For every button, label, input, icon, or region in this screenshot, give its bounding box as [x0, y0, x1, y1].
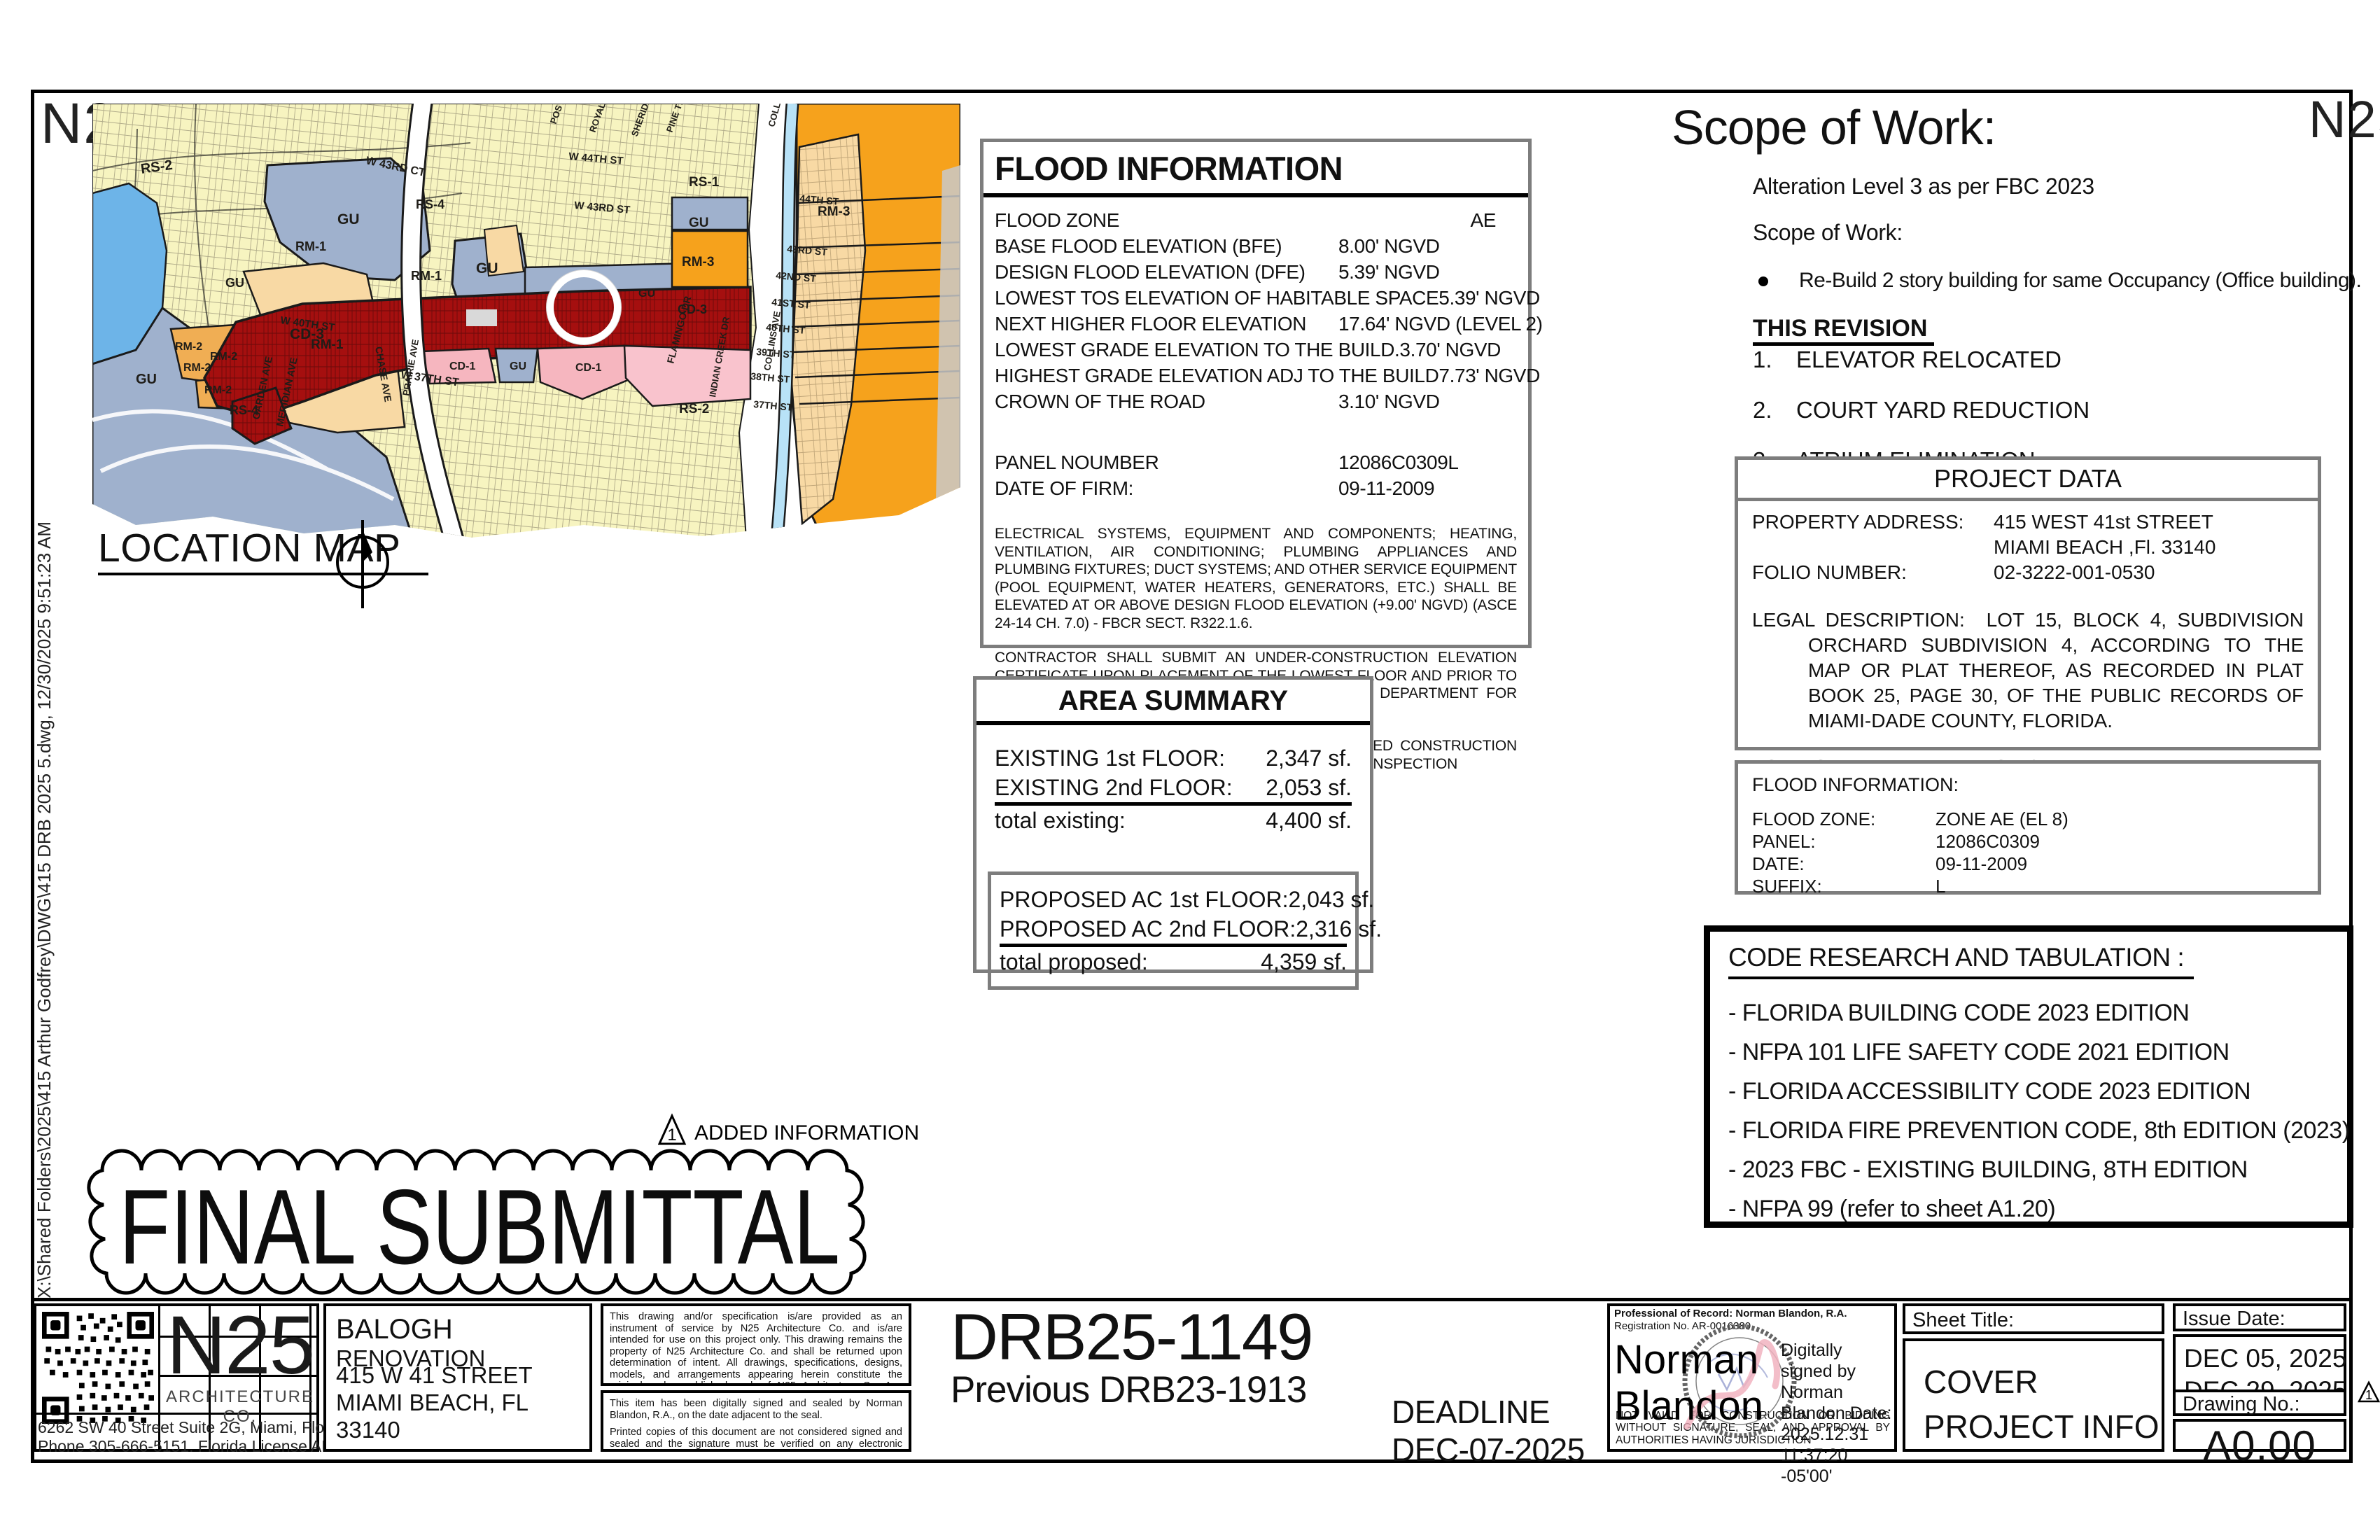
- row-label: PROPOSED AC 1st FLOOR:: [1000, 885, 1289, 914]
- table-row: PROPOSED AC 2nd FLOOR:2,316 sf.: [1000, 914, 1347, 947]
- row-label: DESIGN FLOOD ELEVATION (DFE): [995, 259, 1338, 285]
- deadline-date: DEC-07-2025: [1392, 1431, 1585, 1469]
- table-row: total existing:4,400 sf.: [995, 806, 1352, 835]
- row-label: LOWEST TOS ELEVATION OF HABITABLE SPACE: [995, 285, 1438, 311]
- svg-text:1: 1: [2365, 1388, 2372, 1402]
- flood-info-heading: FLOOD INFORMATION:: [1752, 773, 2304, 797]
- issue-date-1: DEC 05, 2025: [2184, 1344, 2346, 1373]
- revision-triangle-icon: 1: [2357, 1380, 2380, 1403]
- row-label: EXISTING 2nd FLOOR:: [995, 773, 1266, 802]
- map-zone-label: GU: [638, 288, 655, 300]
- map-zone-label: RM-1: [411, 269, 442, 283]
- property-address-row: PROPERTY ADDRESS: 415 WEST 41st STREETMI…: [1752, 510, 2304, 560]
- row-value: 3.70' NGVD: [1399, 337, 1517, 363]
- row-label: LOWEST GRADE ELEVATION TO THE BUILD.: [995, 337, 1399, 363]
- row-value: 2,043 sf.: [1289, 885, 1375, 914]
- drawing-no-cell: A0.00: [2173, 1419, 2346, 1452]
- drb-previous: Previous DRB23-1913: [951, 1371, 1312, 1410]
- project-data-box: PROJECT DATA PROPERTY ADDRESS: 415 WEST …: [1735, 456, 2321, 750]
- alteration-level: Alteration Level 3 as per FBC 2023: [1753, 174, 2094, 199]
- sheet-title: COVER PROJECT INFO: [1905, 1341, 2162, 1449]
- row-label: NEXT HIGHER FLOOR ELEVATION: [995, 311, 1338, 337]
- architect-logo: N25: [161, 1306, 319, 1385]
- map-zone-label: RM-2: [175, 341, 202, 353]
- map-zone-label: RM-1: [295, 239, 326, 253]
- folio-row: FOLIO NUMBER:02-3222-001-0530: [1752, 560, 2304, 585]
- table-row: FLOOD ZONEAE: [995, 207, 1517, 233]
- table-row: BASE FLOOD ELEVATION (BFE)8.00' NGVD: [995, 233, 1517, 259]
- map-zone-label: GU: [689, 216, 709, 230]
- row-label: HIGHEST GRADE ELEVATION ADJ TO THE BUILD: [995, 363, 1438, 388]
- project-flood-box: FLOOD INFORMATION: FLOOD ZONE:ZONE AE (E…: [1735, 760, 2321, 895]
- location-map: RS-2W 43RD CTGUGURM-1RM-1GURS-4CD-3RM-2R…: [92, 104, 960, 539]
- row-label: PANEL NOUMBER: [995, 449, 1338, 475]
- row-value: 7.73' NGVD: [1438, 363, 1540, 388]
- row-value: 2,347 sf.: [1266, 743, 1352, 773]
- row-value: 2,053 sf.: [1266, 773, 1352, 802]
- row-label: PROPOSED AC 2nd FLOOR:: [1000, 914, 1296, 944]
- row-value: 3.10' NGVD: [1338, 388, 1517, 414]
- row-value: 12086C0309L: [1338, 449, 1517, 475]
- table-row: CROWN OF THE ROAD3.10' NGVD: [995, 388, 1517, 414]
- corner-logo-right: N25: [2309, 90, 2380, 149]
- code-item: - NFPA 99 (refer to sheet A1.20): [1728, 1189, 2329, 1228]
- final-submittal-text: FINAL SUBMITTAL: [119, 1168, 840, 1287]
- row-value: AE: [1317, 207, 1517, 233]
- file-path-note: X:\Shared Folders\2025\415 Arthur Godfre…: [34, 584, 55, 1298]
- code-item: - 2023 FBC - EXISTING BUILDING, 8TH EDIT…: [1728, 1150, 2329, 1189]
- flood-information-title: FLOOD INFORMATION: [983, 142, 1528, 197]
- drawing-no-header: Drawing No.:: [2173, 1389, 2346, 1416]
- map-zone-label: RM-2: [183, 362, 211, 374]
- revision-item: 2.COURT YARD REDUCTION: [1753, 385, 2141, 435]
- disclaimer-box-1: This drawing and/or specification is/are…: [601, 1303, 911, 1386]
- drb-number-block: DRB25-1149 Previous DRB23-1913: [951, 1303, 1312, 1410]
- drawing-number: A0.00: [2176, 1422, 2344, 1470]
- row-value: 5.39' NGVD: [1338, 259, 1517, 285]
- revision-number: 1.: [1753, 335, 1796, 385]
- map-zone-label: RS-1: [689, 175, 720, 190]
- legal-description: LEGAL DESCRIPTION: LOT 15, BLOCK 4, SUBD…: [1752, 608, 2304, 734]
- row-value: 5.39' NGVD: [1438, 285, 1540, 311]
- revision-number: 2.: [1753, 385, 1796, 435]
- triangle-number: 1: [667, 1126, 676, 1144]
- map-zone-cd1-c: [624, 346, 750, 406]
- row-label: total existing:: [995, 806, 1266, 835]
- qr-code: [42, 1312, 154, 1424]
- flood-zone-row: FLOOD ZONE:ZONE AE (EL 8): [1752, 808, 2304, 830]
- panel-row: PANEL:12086C0309: [1752, 830, 2304, 853]
- row-value: 09-11-2009: [1338, 475, 1517, 501]
- map-zone-label: RM-3: [818, 204, 850, 219]
- flood-information-box: FLOOD INFORMATION FLOOD ZONEAEBASE FLOOD…: [980, 139, 1532, 648]
- scope-bullet-item: Re-Build 2 story building for same Occup…: [1758, 269, 2361, 293]
- issue-date-header: Issue Date:: [2173, 1303, 2346, 1331]
- area-summary-existing: EXISTING 1st FLOOR:2,347 sf.EXISTING 2nd…: [976, 725, 1370, 835]
- map-zone-label: GU: [136, 372, 157, 387]
- table-row: total proposed:4,359 sf.: [1000, 947, 1347, 976]
- code-item: - NFPA 101 LIFE SAFETY CODE 2021 EDITION: [1728, 1032, 2329, 1072]
- code-research-heading: CODE RESEARCH AND TABULATION :: [1728, 943, 2194, 979]
- deadline-label: DEADLINE: [1392, 1393, 1585, 1431]
- code-item: - FLORIDA ACCESSIBILITY CODE 2023 EDITIO…: [1728, 1072, 2329, 1111]
- row-value: 4,359 sf.: [1261, 947, 1347, 976]
- row-value: 4,400 sf.: [1266, 806, 1352, 835]
- row-label: CROWN OF THE ROAD: [995, 388, 1338, 414]
- row-label: BASE FLOOD ELEVATION (BFE): [995, 233, 1338, 259]
- sheet-title-cell: COVER PROJECT INFO: [1903, 1338, 2164, 1452]
- code-research-box: CODE RESEARCH AND TABULATION : - FLORIDA…: [1704, 925, 2353, 1228]
- signature-name: Norman Blandon: [1614, 1337, 1789, 1429]
- table-row: LOWEST GRADE ELEVATION TO THE BUILD.3.70…: [995, 337, 1517, 363]
- area-summary-title: AREA SUMMARY: [976, 680, 1370, 725]
- drb-number: DRB25-1149: [951, 1303, 1312, 1371]
- map-zone-label: RM-2: [204, 384, 232, 396]
- row-value: 17.64' NGVD (LEVEL 2): [1338, 311, 1517, 337]
- sheet-title-header: Sheet Title:: [1903, 1303, 2164, 1334]
- flood-information-table: FLOOD ZONEAEBASE FLOOD ELEVATION (BFE)8.…: [983, 197, 1528, 501]
- architect-address: 6262 SW 40 Street Suite 2G, Miami, Flori…: [38, 1418, 316, 1456]
- table-row: EXISTING 1st FLOOR:2,347 sf.: [995, 743, 1352, 773]
- revision-text: ELEVATOR RELOCATED: [1796, 335, 2061, 385]
- map-zone-label: RM-3: [682, 255, 714, 269]
- map-zone-label: RS-2: [679, 402, 709, 416]
- map-zone-label: RS-4: [416, 197, 444, 211]
- map-zone-label: GU: [225, 276, 244, 290]
- table-row: PANEL NOUMBER12086C0309L: [995, 449, 1517, 475]
- map-road-stub: [466, 309, 497, 326]
- code-item: - FLORIDA FIRE PREVENTION CODE, 8th EDIT…: [1728, 1111, 2329, 1150]
- map-zone-label: CD-1: [575, 362, 601, 374]
- drawing-sheet: N25 N25 X:\Shared Folders\2025\415 Arthu…: [0, 0, 2380, 1540]
- map-zone-label: GU: [510, 360, 526, 372]
- table-gap: [995, 414, 1517, 449]
- row-label: total proposed:: [1000, 947, 1261, 976]
- area-summary-proposed: PROPOSED AC 1st FLOOR:2,043 sf.PROPOSED …: [988, 871, 1359, 990]
- row-label: DATE OF FIRM:: [995, 475, 1338, 501]
- row-label: FLOOD ZONE: [995, 207, 1317, 233]
- code-research-list: - FLORIDA BUILDING CODE 2023 EDITION- NF…: [1728, 993, 2329, 1228]
- table-row: LOWEST TOS ELEVATION OF HABITABLE SPACE5…: [995, 285, 1517, 311]
- project-data-title: PROJECT DATA: [1738, 460, 2318, 501]
- table-row: NEXT HIGHER FLOOR ELEVATION17.64' NGVD (…: [995, 311, 1517, 337]
- architect-block: N25 ARCHITECTURE CO. 6262 SW 40 Street S…: [34, 1303, 319, 1452]
- scope-of-work-heading: Scope of Work:: [1672, 99, 1996, 155]
- revision-item: 1.ELEVATOR RELOCATED: [1753, 335, 2141, 385]
- table-row: HIGHEST GRADE ELEVATION ADJ TO THE BUILD…: [995, 363, 1517, 388]
- table-row: DATE OF FIRM:09-11-2009: [995, 475, 1517, 501]
- suffix-row: SUFFIX:L: [1752, 875, 2304, 897]
- row-value: 2,316 sf.: [1296, 914, 1382, 944]
- final-submittal-stamp: FINAL SUBMITTAL: [70, 1134, 889, 1309]
- map-zone-label: GU: [476, 260, 498, 276]
- table-row: PROPOSED AC 1st FLOOR:2,043 sf.: [1000, 885, 1347, 914]
- signature-block: Professional of Record: Norman Blandon, …: [1607, 1303, 1897, 1452]
- table-row: EXISTING 2nd FLOOR:2,053 sf.: [995, 773, 1352, 806]
- project-block: BALOGH RENOVATION 415 W 41 STREET MIAMI …: [323, 1303, 592, 1452]
- row-label: EXISTING 1st FLOOR:: [995, 743, 1266, 773]
- project-address: 415 W 41 STREET MIAMI BEACH, FL 33140: [336, 1361, 589, 1443]
- scope-of-work-sublabel: Scope of Work:: [1753, 220, 1903, 246]
- disclaimer-box-2: This item has been digitally signed and …: [601, 1390, 911, 1452]
- bullet-icon: [1758, 276, 1768, 286]
- table-row: DESIGN FLOOD ELEVATION (DFE)5.39' NGVD: [995, 259, 1517, 285]
- code-item: - FLORIDA BUILDING CODE 2023 EDITION: [1728, 993, 2329, 1032]
- map-zone-label: RM-2: [210, 351, 237, 363]
- revision-text: COURT YARD REDUCTION: [1796, 385, 2089, 435]
- firm-date-row: DATE:09-11-2009: [1752, 853, 2304, 875]
- project-name-1: BALOGH: [336, 1313, 580, 1345]
- map-zone-label: RM-1: [311, 337, 344, 352]
- map-zone-gu-midright: [672, 197, 748, 230]
- added-information-marker: 1 ADDED INFORMATION: [658, 1112, 980, 1148]
- row-value: 8.00' NGVD: [1338, 233, 1517, 259]
- note-paragraph: ELECTRICAL SYSTEMS, EQUIPMENT AND COMPON…: [995, 525, 1517, 632]
- north-arrow-icon: [321, 519, 405, 610]
- map-zone-label: CD-1: [449, 360, 475, 372]
- area-summary-box: AREA SUMMARY EXISTING 1st FLOOR:2,347 sf…: [973, 676, 1373, 973]
- map-zone-label: GU: [337, 211, 360, 227]
- added-information-label: ADDED INFORMATION: [694, 1121, 919, 1144]
- digital-signature-note: Digitally signed by Norman Blandon Date:…: [1781, 1340, 1897, 1487]
- deadline-block: DEADLINE DEC-07-2025: [1392, 1393, 1585, 1469]
